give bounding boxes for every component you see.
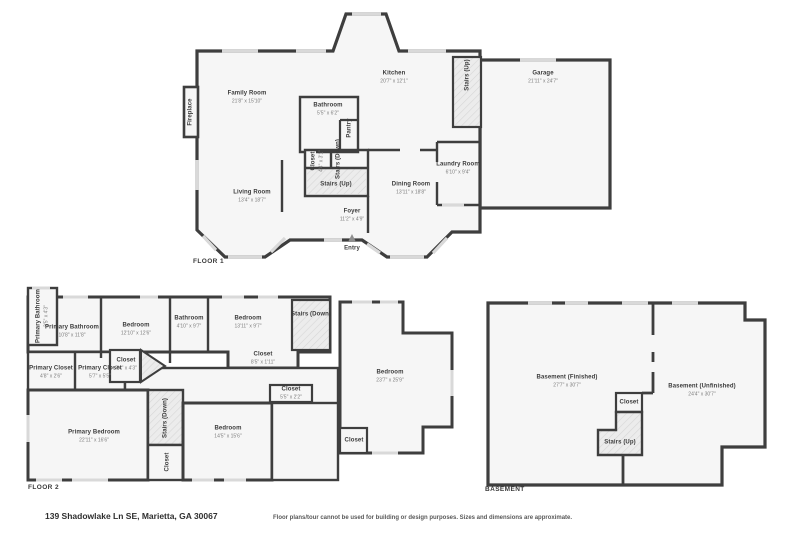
room-label-primary-closet-2: Primary Closet5'7" x 5'5" [78,365,122,379]
room-label-closet-wide: Closet8'5" x 1'11" [251,351,275,365]
room-name: Living Room [233,189,270,197]
room-label-pantry: Pantry [346,118,354,137]
room-name: Stairs (Down) [291,311,331,319]
room-dims: 10'8" x 11'8" [45,332,99,338]
room-name: Stairs (Up) [464,59,472,90]
floor2-title: FLOOR 2 [28,484,59,491]
room-name: Primary Closet [29,365,73,373]
room-label-foyer: Foyer11'2" x 4'9" [340,208,364,222]
room-label-laundry-room: Laundry Room6'10" x 9'4" [436,161,480,175]
room-name: Closet [251,351,275,359]
room-label-bathroom: Bathroom5'5" x 6'2" [313,102,342,116]
basement-title: BASEMENT [485,486,525,493]
room-name: Laundry Room [436,161,480,169]
room-label-basement-unfinished: Basement (Unfinished)24'4" x 30'7" [668,383,735,397]
room-dims: 4'10" x 9'7" [174,323,203,329]
room-name: Primary Bathroom [35,289,43,343]
room-name: Bathroom [174,315,203,323]
room-label-stairs-up-top: Stairs (Up) [464,59,472,90]
room-dims: 27'7" x 30'7" [537,382,598,388]
room-label-closet-small: Closet5'5" x 2'2" [280,386,302,400]
disclaimer-text: Floor plans/tour cannot be used for buil… [273,515,572,521]
room-dims: 22'11" x 16'6" [68,437,120,443]
floor1-title: FLOOR 1 [193,258,224,265]
room-label-stairs-up-b: Stairs (Up) [604,439,635,447]
room-label-family-room: Family Room21'8" x 15'10" [228,90,267,104]
room-dims: 13'11" x 18'8" [392,189,430,195]
room-dims: 8'5" x 1'11" [251,359,275,365]
room-name: Closet [280,386,302,394]
room-dims: 23'7" x 25'9" [376,377,403,383]
room-name: Primary Bathroom [45,324,99,332]
room-label-primary-bedroom: Primary Bedroom22'11" x 16'6" [68,429,120,443]
room-label-bedroom-3: Bedroom14'5" x 15'6" [214,425,241,439]
room-label-garage: Garage21'11" x 24'7" [528,70,558,84]
room-name: Stairs (Up) [320,181,351,189]
room-dims: 12'10" x 12'6" [121,330,151,336]
room-dims: 5'5" x 2'2" [280,394,302,400]
room-name: Closet [164,453,172,472]
room-name: Bedroom [214,425,241,433]
room-label-closet-br: Closet [345,437,364,445]
address-text: 139 Shadowlake Ln SE, Marietta, GA 30067 [45,511,218,521]
room-name: Fireplace [187,98,195,125]
room-name: Closet [620,399,639,407]
room-name: Garage [528,70,558,78]
room-dims: 5'5" x 6'2" [313,110,342,116]
room-label-entry: Entry [344,245,360,253]
room-dims: 20'7" x 12'1" [380,78,407,84]
room-name: Basement (Finished) [537,374,598,382]
room-label-bedroom-large: Bedroom23'7" x 25'9" [376,369,403,383]
room-name: Pantry [346,118,354,137]
room-name: Closet [310,150,318,172]
room-name: Stairs (Up) [604,439,635,447]
room-dims: 21'8" x 15'10" [228,98,267,104]
room-name: Closet [345,437,364,445]
room-label-stairs-down-top: Stairs (Down) [291,311,331,319]
room-dims: 13'11" x 9'7" [234,323,261,329]
room-name: Entry [344,245,360,253]
floorplan-canvas: FLOOR 1 FLOOR 2 BASEMENT 139 Shadowlake … [0,0,800,533]
room-label-bedroom-2: Bedroom13'11" x 9'7" [234,315,261,329]
room-label-stairs-down: Stairs (Down) [335,139,343,179]
room-name: Basement (Unfinished) [668,383,735,391]
room-name: Bathroom [313,102,342,110]
room-label-stairs-up-mid: Stairs (Up) [320,181,351,189]
room-label-bathroom-2: Bathroom4'10" x 9'7" [174,315,203,329]
room-dims: 24'4" x 30'7" [668,391,735,397]
room-dims: 6'10" x 9'4" [436,169,480,175]
room-name: Primary Bedroom [68,429,120,437]
room-name: Foyer [340,208,364,216]
room-name: Bedroom [121,322,151,330]
room-name: Bedroom [234,315,261,323]
room-name: Kitchen [380,70,407,78]
room-dims: 13'4" x 18'7" [233,197,270,203]
room-name: Closet [115,357,137,365]
room-name: Stairs (Down) [162,398,170,438]
room-label-closet-vert: Closet [164,453,172,472]
room-label-dining-room: Dining Room13'11" x 18'8" [392,181,430,195]
room-name: Bedroom [376,369,403,377]
room-name: Primary Closet [78,365,122,373]
room-dims: 21'11" x 24'7" [528,78,558,84]
room-label-primary-bathroom: Primary Bathroom10'8" x 11'8" [45,324,99,338]
room-dims: 4'8" x 2'6" [29,373,73,379]
room-label-closet: Closet4'4" x 3'1" [310,150,324,172]
room-name: Family Room [228,90,267,98]
room-label-basement-finished: Basement (Finished)27'7" x 30'7" [537,374,598,388]
room-label-bedroom-1: Bedroom12'10" x 12'6" [121,322,151,336]
room-label-primary-closet-1: Primary Closet4'8" x 2'6" [29,365,73,379]
room-dims: 11'2" x 4'9" [340,216,364,222]
room-label-living-room: Living Room13'4" x 18'7" [233,189,270,203]
floor1-plan [184,14,610,257]
room-label-stairs-down-2: Stairs (Down) [162,398,170,438]
room-label-closet-b: Closet [620,399,639,407]
room-dims: 5'7" x 5'5" [78,373,122,379]
room-dims: 4'4" x 3'1" [318,150,324,172]
room-name: Dining Room [392,181,430,189]
room-name: Stairs (Down) [335,139,343,179]
room-label-kitchen: Kitchen20'7" x 12'1" [380,70,407,84]
room-label-fireplace: Fireplace [187,98,195,125]
room-dims: 14'5" x 15'6" [214,433,241,439]
